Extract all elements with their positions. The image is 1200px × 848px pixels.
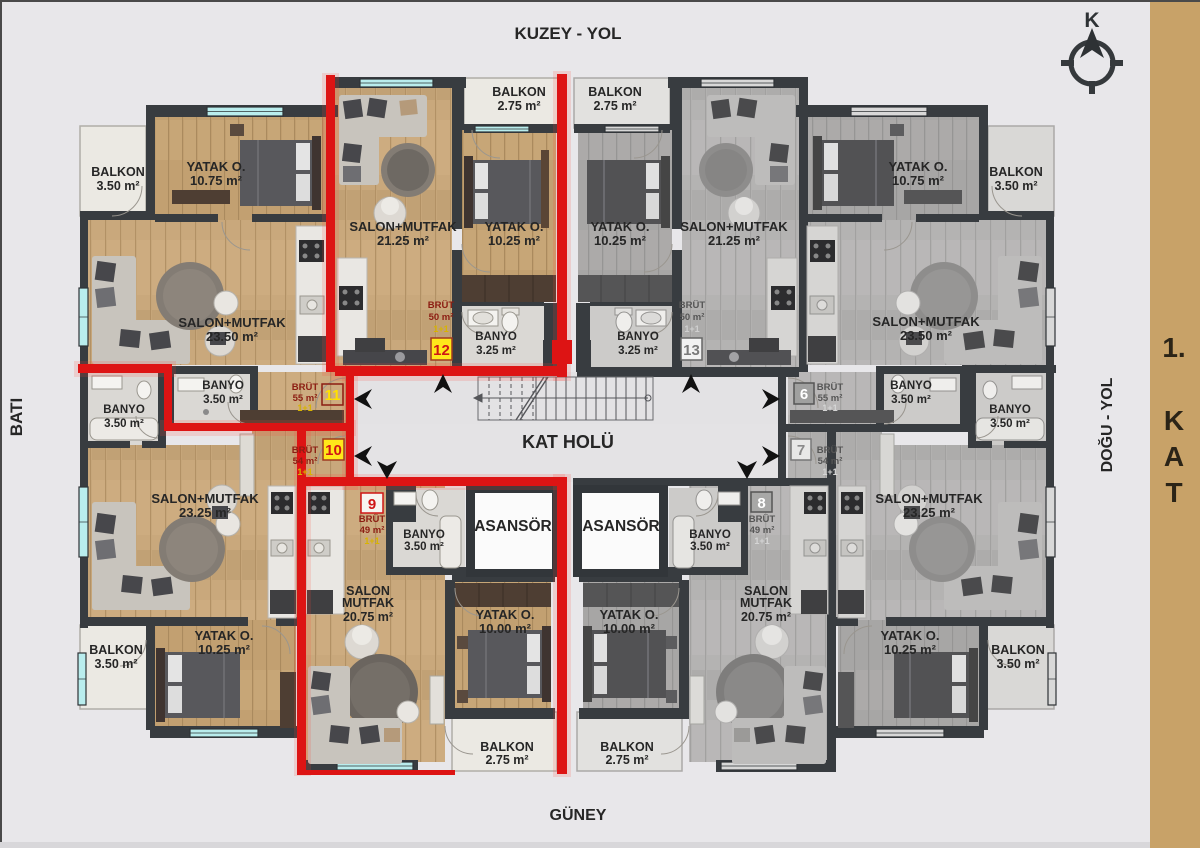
svg-text:10.00 m²: 10.00 m² <box>479 621 532 636</box>
svg-text:BALKON: BALKON <box>991 643 1044 657</box>
svg-text:3.50 m²: 3.50 m² <box>96 179 139 193</box>
svg-text:YATAK O.: YATAK O. <box>485 219 544 234</box>
svg-text:54 m²: 54 m² <box>818 456 843 467</box>
svg-text:BALKON: BALKON <box>91 165 144 179</box>
svg-text:1+1: 1+1 <box>433 324 448 334</box>
svg-text:49 m²: 49 m² <box>750 525 775 536</box>
svg-text:1.: 1. <box>1162 332 1185 363</box>
svg-text:1+1: 1+1 <box>822 403 837 413</box>
svg-text:3.50 m²: 3.50 m² <box>203 394 243 406</box>
svg-text:13: 13 <box>683 342 700 359</box>
svg-text:7: 7 <box>797 442 805 459</box>
svg-text:2.75 m²: 2.75 m² <box>485 753 528 767</box>
svg-text:BRÜT: BRÜT <box>292 382 319 393</box>
svg-text:ASANSÖR: ASANSÖR <box>582 518 660 535</box>
svg-text:23.25 m²: 23.25 m² <box>179 505 232 520</box>
svg-text:23.50 m²: 23.50 m² <box>206 329 259 344</box>
svg-text:50 m²: 50 m² <box>680 312 705 323</box>
svg-text:54 m²: 54 m² <box>293 456 318 467</box>
svg-text:10.25 m²: 10.25 m² <box>594 233 647 248</box>
svg-text:3.25 m²: 3.25 m² <box>618 345 658 357</box>
svg-text:1+1: 1+1 <box>754 536 769 546</box>
svg-text:3.50 m²: 3.50 m² <box>994 179 1037 193</box>
svg-text:BRÜT: BRÜT <box>817 382 844 393</box>
svg-text:BANYO: BANYO <box>103 404 145 416</box>
svg-text:KUZEY - YOL: KUZEY - YOL <box>514 24 621 43</box>
svg-text:1+1: 1+1 <box>297 403 312 413</box>
svg-text:10.75 m²: 10.75 m² <box>190 173 243 188</box>
svg-text:ASANSÖR: ASANSÖR <box>474 518 552 535</box>
svg-text:BALKON: BALKON <box>600 740 653 754</box>
svg-text:YATAK O.: YATAK O. <box>195 628 254 643</box>
svg-text:BRÜT: BRÜT <box>359 514 386 525</box>
svg-text:3.50 m²: 3.50 m² <box>104 418 144 430</box>
svg-text:3.50 m²: 3.50 m² <box>94 657 137 671</box>
svg-text:YATAK O.: YATAK O. <box>187 159 246 174</box>
svg-text:SALON+MUTFAK: SALON+MUTFAK <box>349 219 457 234</box>
svg-text:3.50 m²: 3.50 m² <box>690 541 730 553</box>
svg-text:A: A <box>1164 441 1184 472</box>
svg-text:BRÜT: BRÜT <box>428 300 455 311</box>
svg-text:YATAK O.: YATAK O. <box>476 607 535 622</box>
svg-text:3.25 m²: 3.25 m² <box>476 345 516 357</box>
svg-text:SALON+MUTFAK: SALON+MUTFAK <box>872 314 980 329</box>
svg-text:SALON+MUTFAK: SALON+MUTFAK <box>875 491 983 506</box>
svg-text:BANYO: BANYO <box>689 529 731 541</box>
svg-text:1+1: 1+1 <box>364 536 379 546</box>
svg-text:YATAK O.: YATAK O. <box>600 607 659 622</box>
svg-text:SALON+MUTFAK: SALON+MUTFAK <box>151 491 259 506</box>
svg-text:MUTFAK: MUTFAK <box>342 596 394 610</box>
svg-text:3.50 m²: 3.50 m² <box>996 657 1039 671</box>
svg-text:9: 9 <box>368 496 376 513</box>
svg-text:2.75 m²: 2.75 m² <box>605 753 648 767</box>
svg-text:GÜNEY: GÜNEY <box>550 805 607 824</box>
svg-text:23.50 m²: 23.50 m² <box>900 328 953 343</box>
svg-text:BANYO: BANYO <box>890 380 932 392</box>
svg-text:10.75 m²: 10.75 m² <box>892 173 945 188</box>
svg-text:2.75 m²: 2.75 m² <box>497 99 540 113</box>
svg-text:BANYO: BANYO <box>989 404 1031 416</box>
svg-text:49 m²: 49 m² <box>360 525 385 536</box>
svg-text:YATAK O.: YATAK O. <box>591 219 650 234</box>
svg-text:BRÜT: BRÜT <box>679 300 706 311</box>
svg-text:SALON+MUTFAK: SALON+MUTFAK <box>178 315 286 330</box>
svg-text:10.25 m²: 10.25 m² <box>198 642 251 657</box>
svg-text:BANYO: BANYO <box>617 331 659 343</box>
svg-text:11: 11 <box>325 387 341 404</box>
svg-text:BALKON: BALKON <box>492 85 545 99</box>
svg-text:3.50 m²: 3.50 m² <box>891 394 931 406</box>
svg-text:T: T <box>1165 477 1182 508</box>
svg-text:21.25 m²: 21.25 m² <box>377 233 430 248</box>
svg-text:BANYO: BANYO <box>202 380 244 392</box>
svg-text:BRÜT: BRÜT <box>749 514 776 525</box>
svg-text:23.25 m²: 23.25 m² <box>903 505 956 520</box>
svg-text:10.00 m²: 10.00 m² <box>603 621 656 636</box>
svg-text:MUTFAK: MUTFAK <box>740 596 792 610</box>
svg-text:6: 6 <box>800 386 808 403</box>
svg-text:BALKON: BALKON <box>480 740 533 754</box>
svg-text:8: 8 <box>757 495 765 512</box>
svg-text:BALKON: BALKON <box>89 643 142 657</box>
svg-text:10: 10 <box>325 442 342 459</box>
svg-text:3.50 m²: 3.50 m² <box>990 418 1030 430</box>
svg-text:KAT HOLÜ: KAT HOLÜ <box>522 432 614 452</box>
svg-text:SALON+MUTFAK: SALON+MUTFAK <box>680 219 788 234</box>
svg-text:20.75 m²: 20.75 m² <box>741 610 791 624</box>
svg-text:BANYO: BANYO <box>475 331 517 343</box>
svg-text:12: 12 <box>433 342 450 359</box>
svg-text:10.25 m²: 10.25 m² <box>488 233 541 248</box>
svg-text:10.25 m²: 10.25 m² <box>884 642 937 657</box>
svg-text:K: K <box>1084 9 1099 32</box>
svg-text:BALKON: BALKON <box>588 85 641 99</box>
svg-text:YATAK O.: YATAK O. <box>881 628 940 643</box>
svg-text:K: K <box>1164 405 1184 436</box>
svg-text:1+1: 1+1 <box>297 467 312 477</box>
svg-text:50 m²: 50 m² <box>429 312 454 323</box>
svg-text:BRÜT: BRÜT <box>292 445 319 456</box>
svg-text:DOĞU - YOL: DOĞU - YOL <box>1097 377 1116 472</box>
svg-text:20.75 m²: 20.75 m² <box>343 610 393 624</box>
svg-text:BRÜT: BRÜT <box>817 445 844 456</box>
svg-text:BATI: BATI <box>7 398 26 436</box>
svg-text:3.50 m²: 3.50 m² <box>404 541 444 553</box>
svg-text:21.25 m²: 21.25 m² <box>708 233 761 248</box>
svg-text:1+1: 1+1 <box>822 467 837 477</box>
svg-text:BALKON: BALKON <box>989 165 1042 179</box>
svg-text:1+1: 1+1 <box>684 324 699 334</box>
svg-text:2.75 m²: 2.75 m² <box>593 99 636 113</box>
svg-text:YATAK O.: YATAK O. <box>889 159 948 174</box>
svg-text:BANYO: BANYO <box>403 529 445 541</box>
